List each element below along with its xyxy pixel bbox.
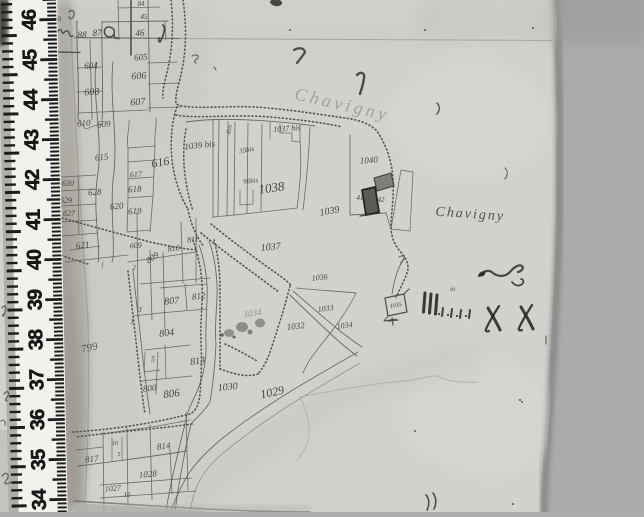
- svg-text:46: 46: [18, 9, 40, 31]
- svg-text:34: 34: [29, 488, 51, 511]
- svg-text:45: 45: [19, 49, 41, 71]
- svg-text:43: 43: [21, 129, 43, 151]
- svg-text:41: 41: [23, 209, 45, 231]
- svg-text:42: 42: [22, 169, 44, 191]
- svg-text:44: 44: [20, 88, 42, 111]
- svg-text:36: 36: [27, 409, 49, 431]
- svg-text:39: 39: [24, 289, 46, 311]
- svg-text:38: 38: [25, 329, 47, 351]
- svg-text:35: 35: [28, 449, 50, 471]
- svg-text:40: 40: [23, 249, 45, 271]
- svg-text:37: 37: [26, 369, 48, 391]
